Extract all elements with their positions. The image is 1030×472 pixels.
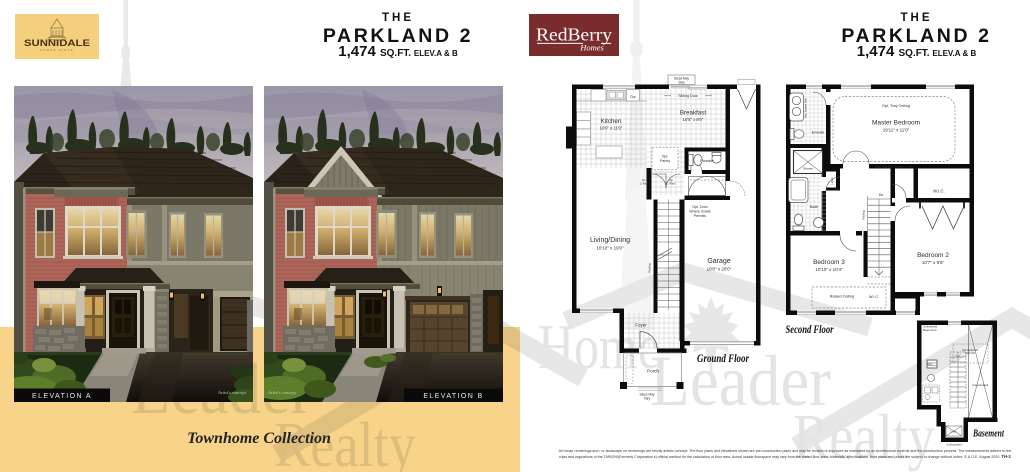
svg-text:HOMES SINCE: HOMES SINCE xyxy=(40,48,74,52)
svg-text:W.I.C.: W.I.C. xyxy=(869,295,879,299)
svg-text:4 Pc. R/I: 4 Pc. R/I xyxy=(965,351,975,355)
svg-text:10'7" x 9'6": 10'7" x 9'6" xyxy=(922,260,945,265)
svg-text:Kitchen: Kitchen xyxy=(601,118,622,125)
svg-text:Opt. Double Doors: Opt. Double Doors xyxy=(875,165,903,169)
svg-text:Pantry: Pantry xyxy=(660,159,671,163)
svg-text:Shower: Shower xyxy=(803,167,813,171)
svg-text:Unexcavated: Unexcavated xyxy=(946,443,962,447)
svg-text:Artist's concept.: Artist's concept. xyxy=(268,390,297,395)
svg-text:Permits: Permits xyxy=(694,214,706,218)
svg-text:Opt. Double Sink: Opt. Double Sink xyxy=(804,97,808,117)
svg-text:Unexc.: Unexc. xyxy=(950,431,958,434)
svg-text:Ensuite: Ensuite xyxy=(812,131,825,135)
svg-text:Second Floor: Second Floor xyxy=(786,324,834,336)
svg-text:Basement: Basement xyxy=(972,429,1005,440)
svg-text:Railing: Railing xyxy=(862,210,866,220)
svg-text:10'5" x 8'0": 10'5" x 8'0" xyxy=(683,117,704,122)
svg-text:Homes: Homes xyxy=(579,43,604,53)
svg-text:Unexcavated: Unexcavated xyxy=(972,383,989,387)
svg-text:10'0" x 11'0": 10'0" x 11'0" xyxy=(600,126,623,131)
svg-text:Railing: Railing xyxy=(648,263,652,273)
svg-text:Powder: Powder xyxy=(700,158,714,163)
svg-text:Dw: Dw xyxy=(630,95,636,99)
svg-text:Raised Ceiling: Raised Ceiling xyxy=(830,295,854,299)
svg-text:ELEVATION B: ELEVATION B xyxy=(423,393,483,400)
svg-text:ELEVATION A: ELEVATION A xyxy=(32,393,92,400)
svg-text:10'10" x 19'0": 10'10" x 19'0" xyxy=(596,246,624,251)
svg-text:Master Bedroom: Master Bedroom xyxy=(872,120,920,127)
svg-text:Opt.: Opt. xyxy=(662,155,669,159)
svg-text:Linen: Linen xyxy=(830,177,834,185)
svg-text:Basement: Basement xyxy=(923,328,937,332)
svg-text:10'0" x 20'0": 10'0" x 20'0" xyxy=(707,267,732,272)
svg-text:Sliding Door: Sliding Door xyxy=(678,94,698,98)
svg-text:Vary: Vary xyxy=(644,397,651,401)
svg-text:Ground Floor: Ground Floor xyxy=(697,353,749,365)
svg-text:Opt. Tray Ceiling: Opt. Tray Ceiling xyxy=(882,104,910,108)
svg-text:Porch: Porch xyxy=(647,369,659,374)
svg-text:Living/Dining: Living/Dining xyxy=(590,237,630,244)
svg-text:Garage: Garage xyxy=(707,258,730,265)
svg-text:Furn.: Furn. xyxy=(927,363,933,366)
svg-text:10'10" x 10'4": 10'10" x 10'4" xyxy=(815,267,843,272)
svg-text:1 Rsd: 1 Rsd xyxy=(667,182,675,186)
svg-text:RedBerry: RedBerry xyxy=(536,25,612,45)
svg-text:Dn: Dn xyxy=(879,193,884,197)
svg-text:Bedroom 2: Bedroom 2 xyxy=(917,252,949,259)
svg-text:W.I.C.: W.I.C. xyxy=(933,189,944,194)
svg-text:Foyer: Foyer xyxy=(635,323,647,328)
svg-text:Breakfast: Breakfast xyxy=(680,110,706,117)
svg-text:Where Grade: Where Grade xyxy=(689,210,711,214)
svg-text:Vary: Vary xyxy=(678,80,685,84)
svg-text:Bath: Bath xyxy=(810,204,818,209)
svg-text:1 Rsd: 1 Rsd xyxy=(640,182,648,186)
svg-text:Artist's concept.: Artist's concept. xyxy=(218,390,247,395)
svg-text:Opt. Door: Opt. Door xyxy=(692,205,708,209)
svg-text:19'11" x 11'0": 19'11" x 11'0" xyxy=(883,128,910,133)
svg-text:Bedroom 3: Bedroom 3 xyxy=(813,259,845,266)
